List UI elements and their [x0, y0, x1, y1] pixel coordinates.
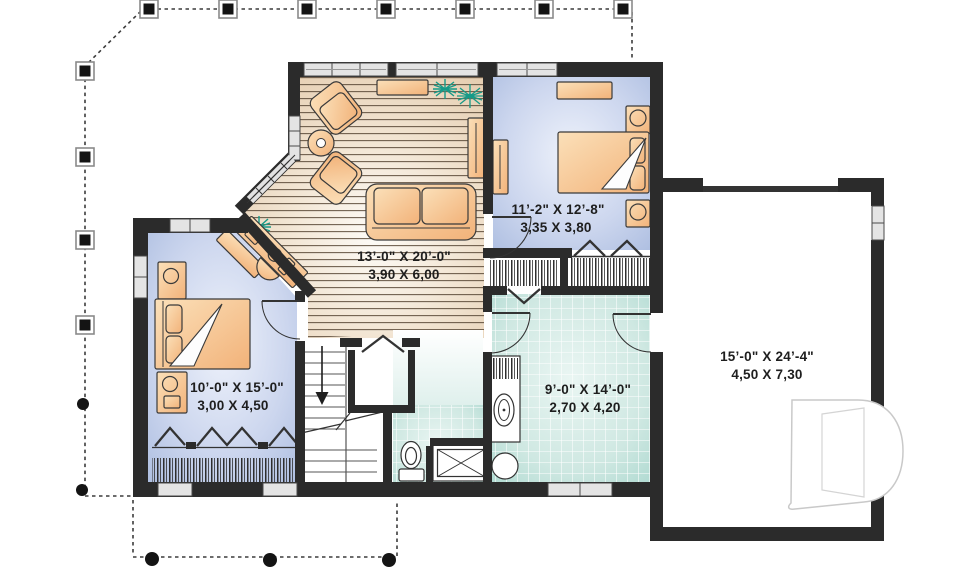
closet-rod-hatch: [152, 458, 300, 484]
nightstand: [626, 106, 650, 134]
wall-segment: [871, 178, 884, 206]
window: [548, 483, 612, 496]
living-room-dim-imperial: 13’-0" X 20’-0": [357, 249, 451, 264]
logo-watermark: [789, 400, 903, 509]
porch-column: [382, 553, 396, 567]
wall-segment: [348, 350, 355, 412]
window: [497, 63, 557, 76]
wall-segment: [408, 350, 415, 412]
wall-segment: [483, 286, 507, 295]
porch-post: [298, 0, 316, 18]
bedroom-top-dim-imperial: 11’-2" X 12’-8": [511, 202, 604, 217]
porch-post: [140, 0, 158, 18]
bathroom-dim-metric: 2,70 X 4,20: [549, 400, 620, 415]
window: [304, 63, 388, 76]
porch-post: [535, 0, 553, 18]
window: [170, 219, 210, 232]
wall-segment: [295, 341, 305, 497]
bathroom-dim-imperial: 9’-0" X 14’-0": [545, 382, 631, 397]
porch-post: [456, 0, 474, 18]
garage-door: [703, 186, 838, 192]
wall-segment: [426, 446, 433, 492]
wall-segment: [650, 352, 663, 528]
porch-column: [77, 398, 89, 410]
pillow: [166, 305, 182, 333]
garage-dim-metric: 4,50 X 7,30: [731, 367, 802, 382]
closet-rod-hatch: [490, 260, 558, 286]
window: [158, 483, 192, 496]
stairwell-floor: [305, 346, 383, 492]
towel-bar: [490, 358, 518, 379]
wall-segment: [560, 250, 568, 293]
porch-post: [76, 231, 94, 249]
garage-dim-imperial: 15’-0" X 24’-4": [720, 349, 814, 364]
window: [134, 256, 147, 298]
window: [872, 206, 884, 240]
porch-column: [76, 484, 88, 496]
wall-segment: [650, 527, 884, 541]
living-room-dim-metric: 3,90 X 6,00: [368, 267, 439, 282]
porch-column: [145, 552, 159, 566]
floor-plan-canvas: 13’-0" X 20’-0" 3,90 X 6,00 11’-2" X 12’…: [0, 0, 960, 569]
bedroom-top-dim-metric: 3,35 X 3,80: [520, 220, 591, 235]
porch-post: [76, 62, 94, 80]
dresser: [493, 140, 508, 194]
wall-segment: [483, 352, 492, 492]
dresser: [557, 82, 612, 99]
water-heater: [492, 453, 518, 479]
porch-post: [219, 0, 237, 18]
window: [289, 116, 300, 160]
side-table: [308, 130, 334, 156]
wall-segment: [340, 338, 362, 347]
console-table: [377, 80, 428, 95]
porch-post: [76, 148, 94, 166]
porch-post: [377, 0, 395, 18]
wall-segment: [430, 438, 492, 446]
nightstand: [626, 200, 650, 227]
porch-post: [76, 316, 94, 334]
vanity-sink: [488, 356, 520, 442]
porch-post: [614, 0, 632, 18]
window: [263, 483, 297, 496]
wall-segment: [348, 405, 415, 413]
logo-door-shape: [822, 408, 864, 497]
wall-segment: [650, 178, 703, 192]
wall-segment: [402, 338, 420, 347]
bedroom-left-dim-imperial: 10’-0" X 15’-0": [190, 380, 284, 395]
bedroom-left-dim-metric: 3,00 X 4,50: [197, 398, 268, 413]
sofa: [366, 184, 476, 240]
wall-segment: [483, 62, 493, 214]
tv-cabinet: [468, 118, 484, 178]
wall-segment: [483, 248, 572, 258]
nightstand: [158, 262, 186, 299]
bed: [155, 299, 250, 369]
nightstand: [157, 372, 187, 413]
porch-column: [263, 553, 277, 567]
wall-segment: [541, 286, 663, 295]
wall-segment: [483, 295, 492, 312]
bed: [558, 132, 649, 193]
shower: [433, 445, 489, 481]
plant-icon: [433, 79, 457, 99]
closet-rod-hatch: [570, 258, 650, 286]
floor-plan: 13’-0" X 20’-0" 3,90 X 6,00 11’-2" X 12’…: [0, 0, 960, 569]
wall-segment: [383, 408, 392, 492]
window: [396, 63, 478, 76]
